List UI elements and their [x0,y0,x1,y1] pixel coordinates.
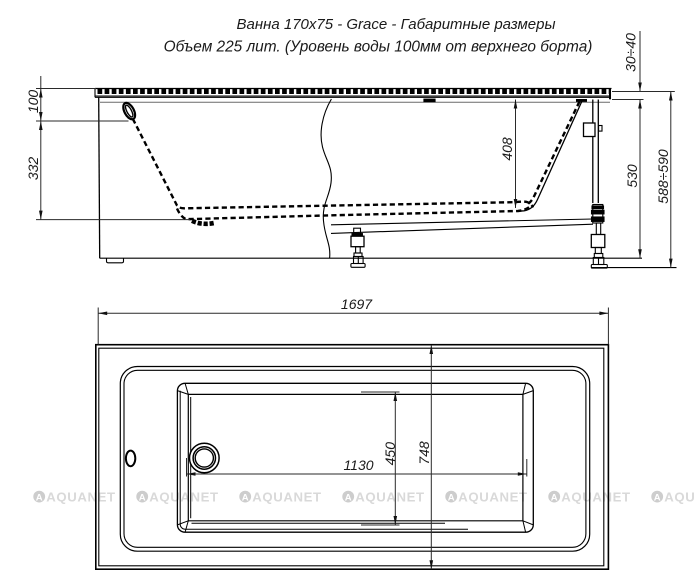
svg-text:748: 748 [416,441,432,465]
svg-text:408: 408 [499,137,515,161]
svg-text:100: 100 [25,90,41,114]
svg-text:588÷590: 588÷590 [655,149,671,204]
svg-text:332: 332 [25,157,41,181]
svg-text:530: 530 [624,164,640,188]
svg-text:Объем 225 лит. (Уровень воды 1: Объем 225 лит. (Уровень воды 100мм от ве… [164,39,593,56]
svg-text:A: A [36,492,43,503]
svg-text:Ванна 170х75 - Grace - Габарит: Ванна 170х75 - Grace - Габаритные размер… [236,16,555,33]
svg-text:AQUANET: AQUANET [46,489,115,504]
svg-text:1697: 1697 [341,296,373,312]
svg-text:1130: 1130 [343,457,373,473]
svg-text:450: 450 [382,442,398,466]
svg-text:30÷40: 30÷40 [622,33,638,72]
